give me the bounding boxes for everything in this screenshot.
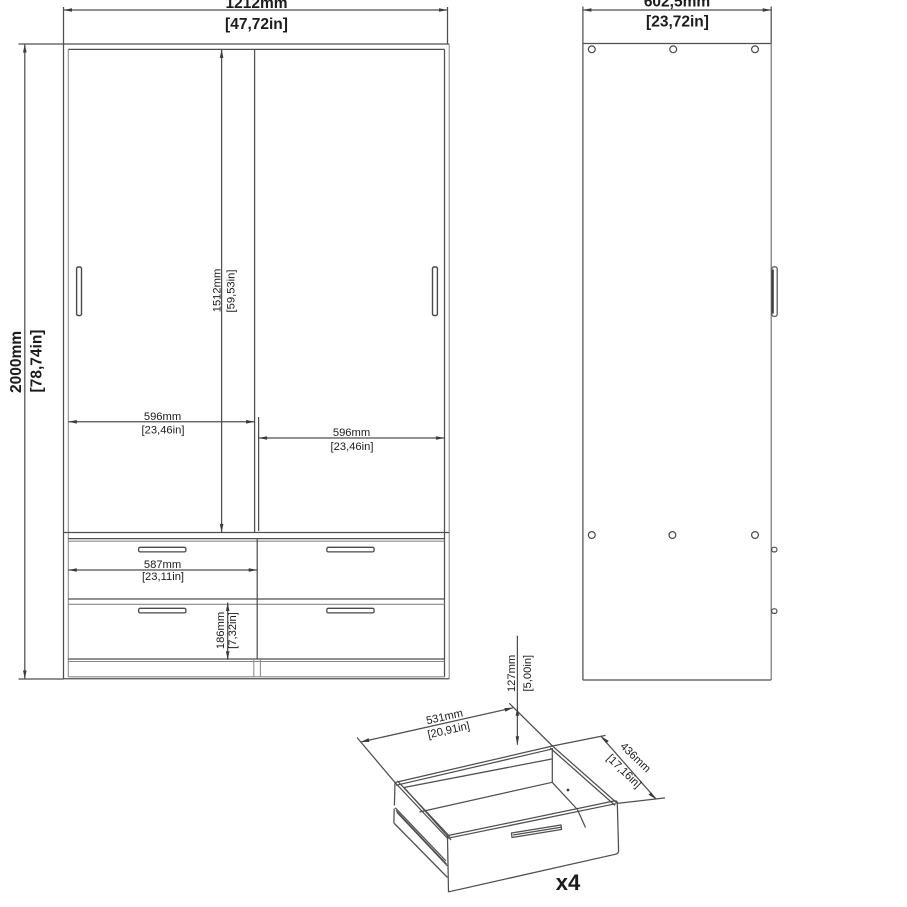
svg-text:[47,72in]: [47,72in] [225,16,288,33]
svg-text:[23,72in]: [23,72in] [646,14,709,31]
svg-text:[59,53in]: [59,53in] [226,270,238,313]
svg-text:127mm: 127mm [506,655,518,692]
svg-text:[5,00in]: [5,00in] [522,655,534,692]
svg-text:[23,46in]: [23,46in] [142,425,185,437]
svg-text:587mm: 587mm [144,559,181,571]
svg-text:[23,11in]: [23,11in] [142,571,184,583]
svg-text:x4: x4 [556,870,581,895]
svg-text:1212mm: 1212mm [225,0,287,12]
svg-text:596mm: 596mm [333,427,370,439]
svg-text:[78,74in]: [78,74in] [29,330,46,393]
svg-text:1512mm: 1512mm [211,269,223,313]
svg-text:596mm: 596mm [144,411,181,423]
svg-text:602,5mm: 602,5mm [644,0,710,11]
svg-text:2000mm: 2000mm [8,331,25,393]
svg-text:186mm: 186mm [215,612,227,649]
svg-text:[23,46in]: [23,46in] [331,441,374,453]
svg-text:[7,32in]: [7,32in] [227,612,239,649]
